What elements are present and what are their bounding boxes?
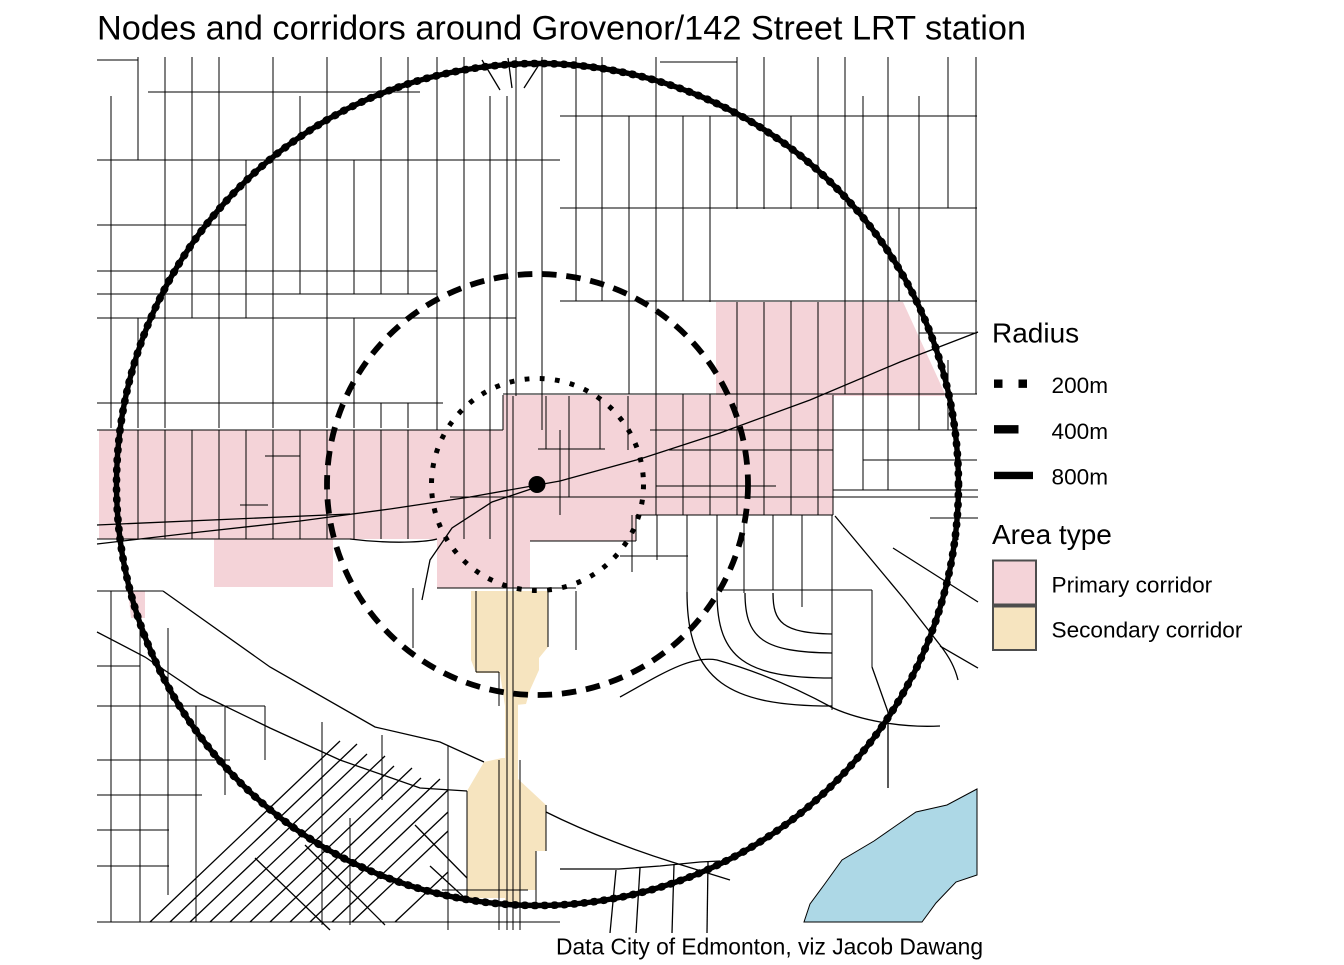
svg-text:Area type: Area type (992, 519, 1112, 550)
svg-text:Radius: Radius (992, 318, 1079, 349)
svg-text:800m: 800m (1052, 465, 1109, 490)
svg-text:Data City of Edmonton, viz Jac: Data City of Edmonton, viz Jacob Dawang (556, 934, 983, 960)
svg-text:Primary corridor: Primary corridor (1052, 572, 1213, 597)
svg-text:Secondary corridor: Secondary corridor (1052, 618, 1243, 643)
svg-text:200m: 200m (1052, 373, 1109, 398)
svg-text:Nodes and corridors around Gro: Nodes and corridors around Grovenor/142 … (97, 10, 1026, 48)
svg-text:400m: 400m (1052, 419, 1109, 444)
